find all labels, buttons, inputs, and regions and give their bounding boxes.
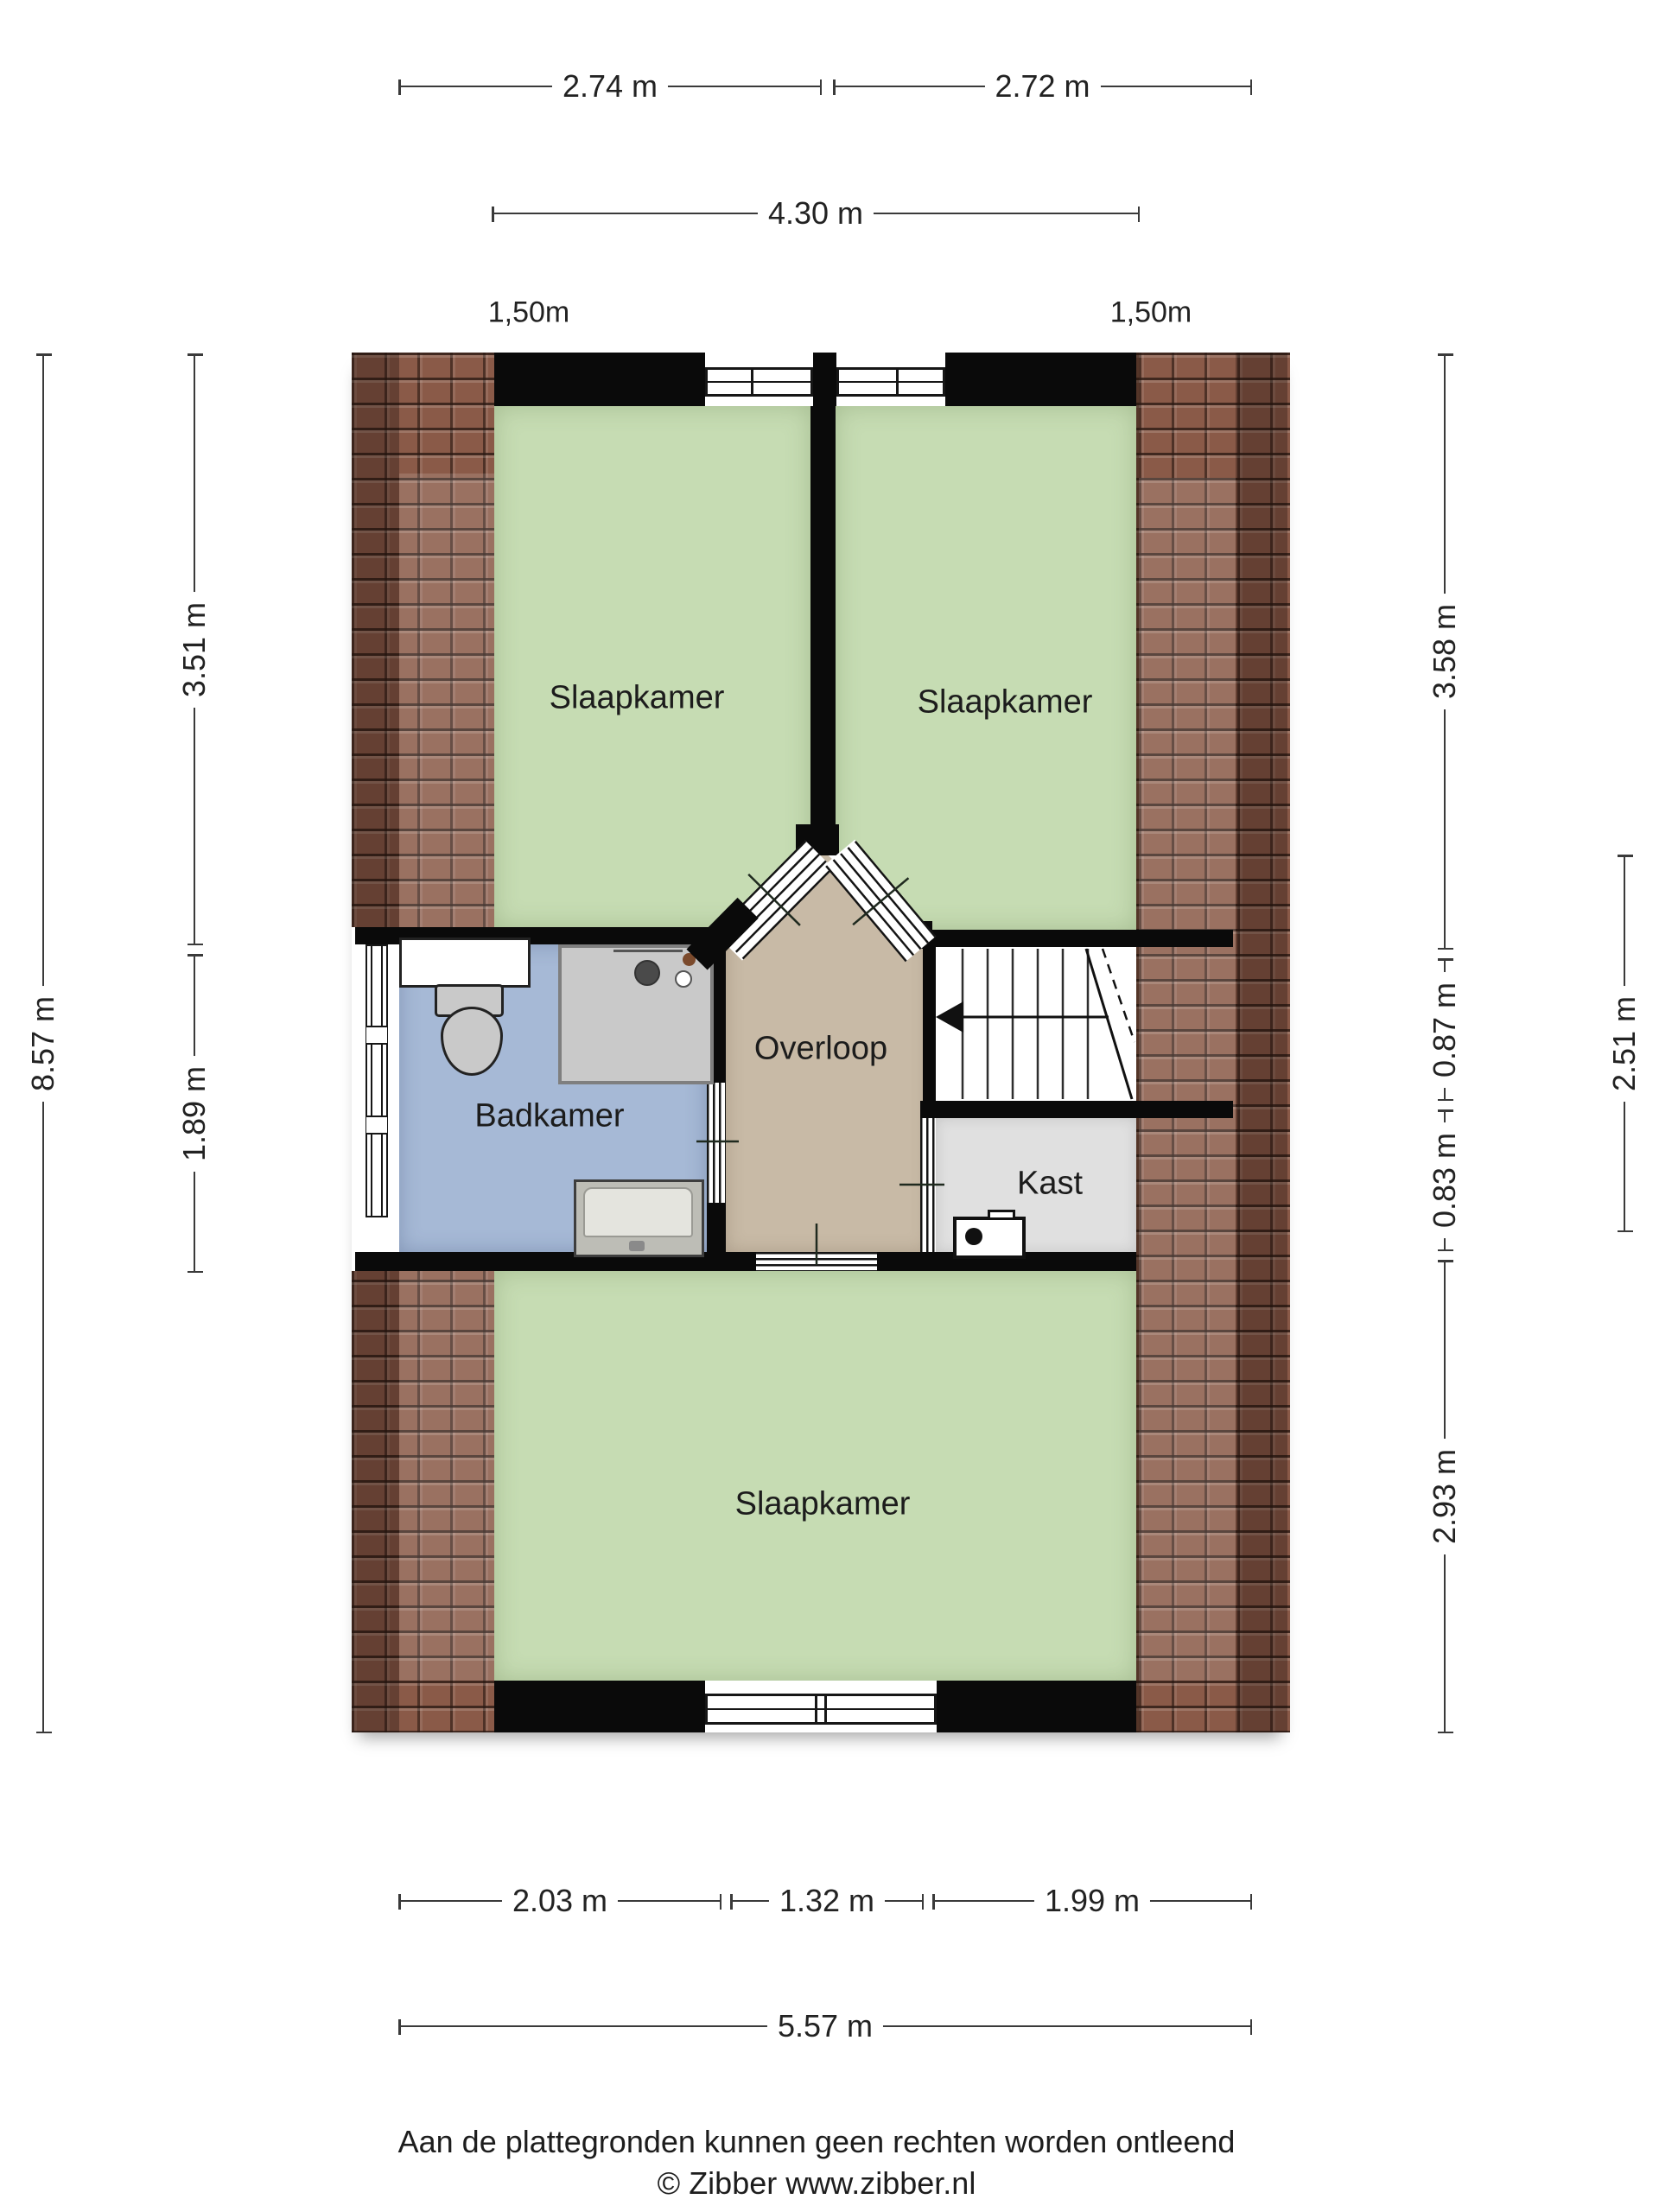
dim-bottom-mid: 1.32 m <box>731 1900 923 1902</box>
dim-label: 3.51 m <box>176 591 213 707</box>
dim-label: 4.30 m <box>758 195 874 232</box>
dim-right-mid-upper: 0.87 m <box>1444 959 1446 1100</box>
room-label-landing: Overloop <box>754 1031 887 1068</box>
footer-disclaimer: Aan de plattegronden kunnen geen rechten… <box>398 2124 1236 2160</box>
room-label-bedroom-bottom: Slaapkamer <box>735 1486 911 1523</box>
dim-right-outer: 2.51 m <box>1624 855 1625 1231</box>
dim-label: 2.74 m <box>552 68 668 105</box>
floorplan: Slaapkamer Slaapkamer Slaapkamer Badkame… <box>352 353 1287 1732</box>
dim-label: 5.57 m <box>767 2008 883 2044</box>
dim-top-width-inner: 4.30 m <box>493 213 1139 214</box>
room-label-bedroom-top-right: Slaapkamer <box>918 684 1093 721</box>
dim-bottom-total: 5.57 m <box>399 2025 1251 2027</box>
room-label-bathroom: Badkamer <box>474 1098 624 1135</box>
knee-height-label-right: 1,50m <box>1110 296 1192 330</box>
room-label-closet: Kast <box>1017 1166 1083 1203</box>
dim-label: 1.32 m <box>769 1883 885 1919</box>
dim-bottom-left: 2.03 m <box>399 1900 721 1902</box>
dim-right-mid-lower: 0.83 m <box>1444 1110 1446 1250</box>
dim-label: 2.72 m <box>984 68 1100 105</box>
room-label-bedroom-top-left: Slaapkamer <box>550 680 725 717</box>
dim-left-upper: 3.51 m <box>194 354 195 944</box>
dim-label: 2.93 m <box>1427 1439 1463 1554</box>
dim-label: 3.58 m <box>1427 594 1463 709</box>
dim-top-width-right: 2.72 m <box>834 86 1251 87</box>
dim-left-total: 8.57 m <box>42 354 44 1732</box>
dim-top-width-left: 2.74 m <box>399 86 821 87</box>
dim-label: 0.87 m <box>1427 971 1463 1087</box>
footer-copyright: © Zibber www.zibber.nl <box>658 2165 976 2202</box>
dim-label: 2.03 m <box>502 1883 618 1919</box>
dim-label: 2.51 m <box>1606 985 1643 1101</box>
dim-bottom-right: 1.99 m <box>933 1900 1251 1902</box>
floorplan-page: 2.74 m 2.72 m 4.30 m 1,50m 1,50m 3.51 m … <box>0 0 1659 2212</box>
dim-label: 8.57 m <box>25 985 61 1101</box>
dim-label: 1.89 m <box>176 1055 213 1171</box>
dim-label: 0.83 m <box>1427 1122 1463 1238</box>
knee-height-label-left: 1,50m <box>488 296 570 330</box>
dim-left-lower: 1.89 m <box>194 955 195 1272</box>
dim-right-upper: 3.58 m <box>1444 354 1446 949</box>
dim-label: 1.99 m <box>1034 1883 1150 1919</box>
dim-right-lower: 2.93 m <box>1444 1261 1446 1732</box>
